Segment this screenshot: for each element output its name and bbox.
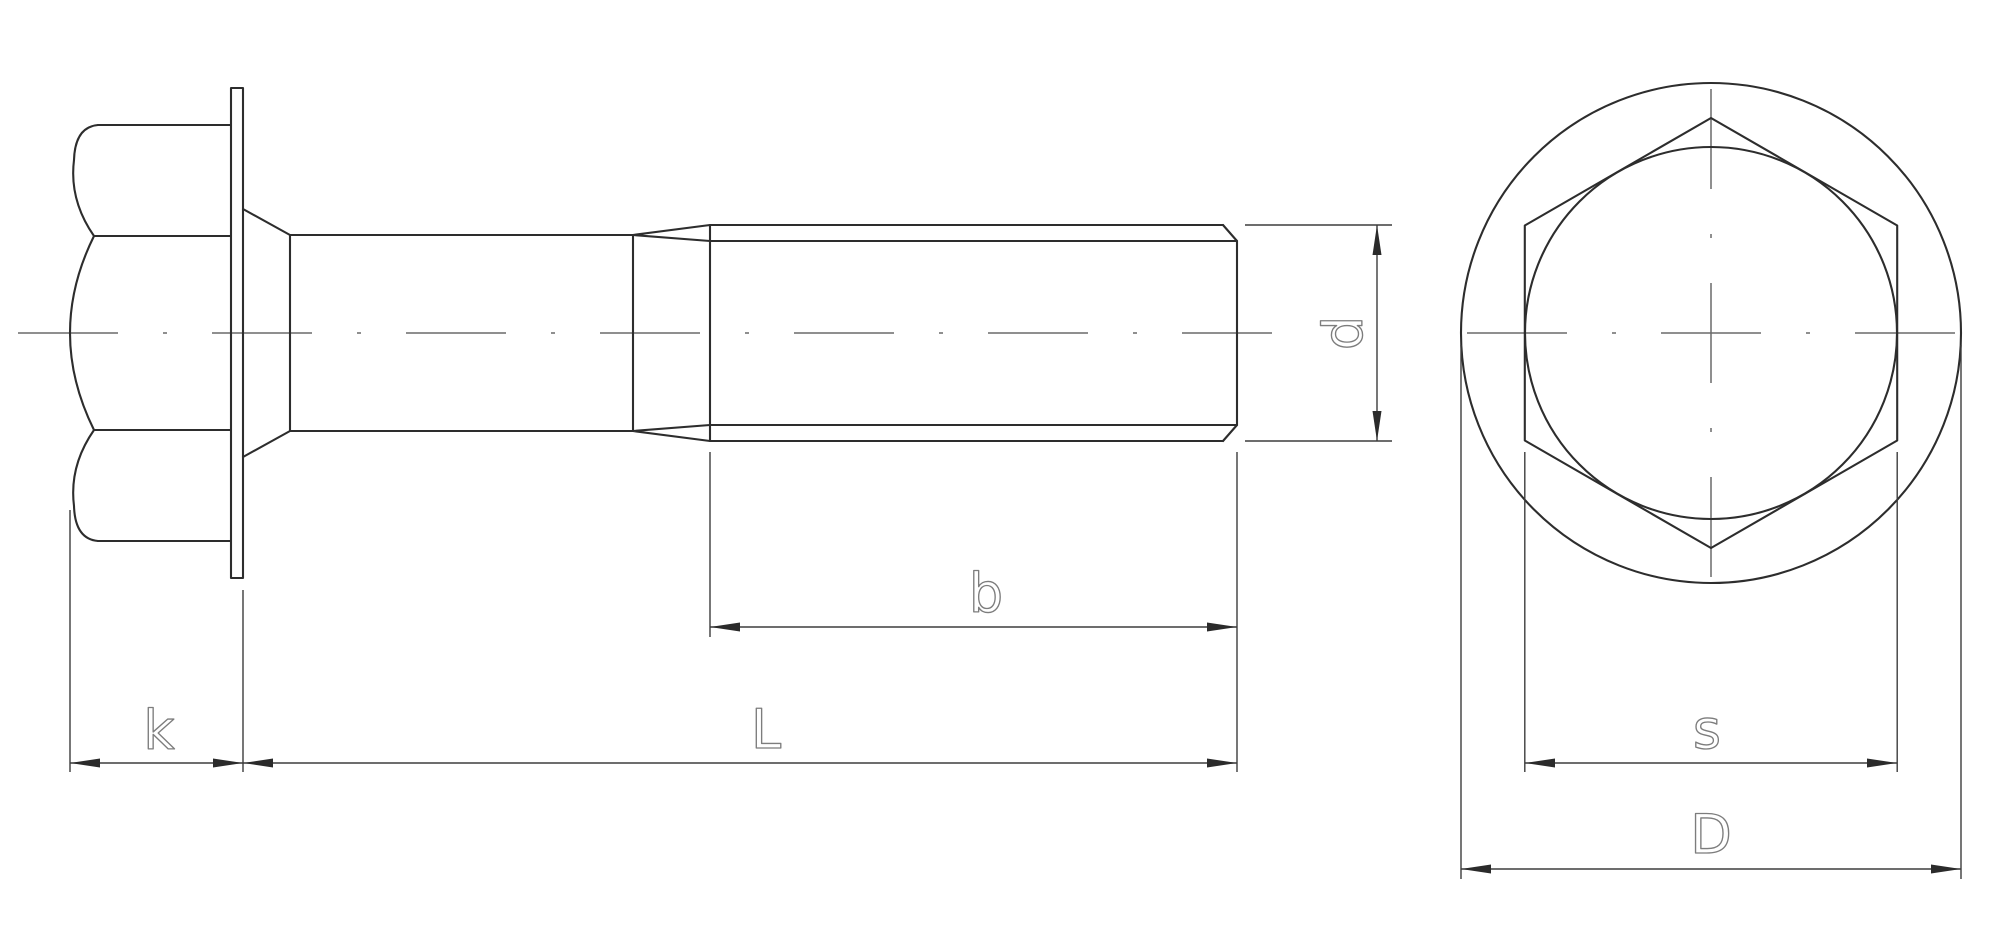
arrowhead [1525,759,1555,768]
dimension-k: k [70,510,243,772]
dim-label-D: D [1690,803,1732,866]
dimension-b: b [710,452,1237,637]
arrowhead [243,759,273,768]
dimensions: k L b d [70,225,1961,879]
arrowhead [710,623,740,632]
drawing-canvas: k L b d [0,0,2000,935]
dimension-D: D [1461,345,1961,879]
dim-label-L: L [751,698,781,761]
arrowhead [1373,411,1382,441]
arrowhead [70,759,100,768]
arrowhead [1207,623,1237,632]
end-view [1449,70,1973,596]
hex-flange-bolt-drawing: k L b d [0,0,2000,935]
dim-label-b: b [969,562,1003,625]
thread-root-lines [710,241,1237,425]
arrowhead [1373,225,1382,255]
arrowhead [213,759,243,768]
arrowhead [1931,865,1961,874]
dimension-L: L [243,452,1237,772]
side-view [18,88,1272,578]
dim-label-k: k [143,699,175,762]
dim-label-s: s [1693,698,1721,761]
thread-crest-lines [710,225,1223,441]
dim-label-d: d [1312,316,1375,350]
arrowhead [1207,759,1237,768]
arrowhead [1461,865,1491,874]
arrowhead [1867,759,1897,768]
